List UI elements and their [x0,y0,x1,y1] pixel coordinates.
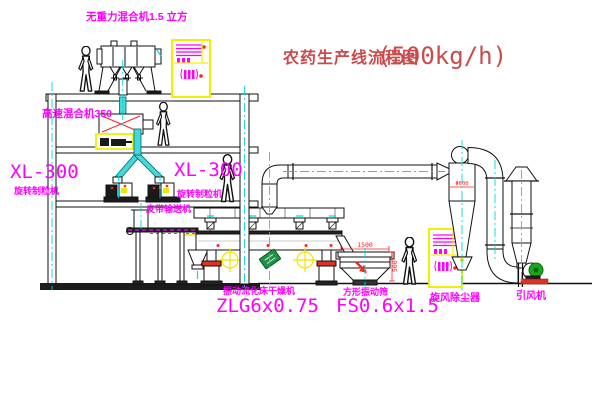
label-granulator-right-model: XL-300 [174,161,243,180]
label-sieve-model: FS0.6x1.5 [336,297,439,316]
label-dryer-model: ZLG6x0.75 [216,297,319,316]
belt-conveyor [127,228,201,285]
dim-sieve-length: 1500 [357,241,373,249]
flow-diagram-canvas: 1500 500 Φ600 [0,0,600,403]
label-gravity-free-mixer: 无重力混合机1.5 立方 [86,12,188,23]
roof-slab [46,94,258,101]
fluid-bed-dryer [188,208,354,285]
label-cyclone: 旋风除尘器 [430,294,480,304]
label-granulator-left-model: XL-300 [10,163,79,182]
dim-sieve-height: 500 [391,260,399,272]
induced-draft-fan [519,263,549,287]
brand-plate [259,249,281,269]
worker-figure [157,102,170,145]
worker-figure [402,237,417,284]
granulator-left [104,177,138,202]
floor2-slab [56,147,258,153]
dryer-pedestal-right [316,250,337,285]
dryer-exhaust-duct [262,163,451,214]
gravity-free-mixer [95,41,161,95]
label-granulator-left-name: 旋转制粒机 [14,187,59,196]
control-cabinet-1 [172,40,210,97]
label-high-speed-mixer: 高速混合机350 [42,109,112,120]
label-granulator-right-name: 旋转制粒机 [177,190,222,199]
label-belt-conveyor: 皮带输送机 [146,205,191,214]
label-fan: 引风机 [516,292,546,302]
indicator-lamp [199,74,203,78]
dryer-springs [205,216,338,233]
indicator-lamp [202,45,206,49]
worker-figure [79,46,93,91]
fan-base [521,279,548,284]
diagram-title-capacity: (500kg/h) [377,44,507,68]
